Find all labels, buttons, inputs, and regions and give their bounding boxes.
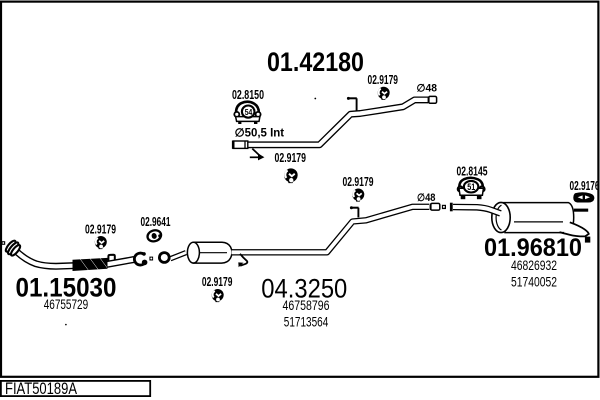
svg-text:02.9179: 02.9179: [343, 174, 374, 189]
svg-text:02.9179: 02.9179: [85, 221, 116, 236]
svg-text:02.8145: 02.8145: [457, 163, 488, 178]
svg-text:46755729: 46755729: [44, 297, 88, 312]
svg-text:∅48: ∅48: [417, 83, 438, 95]
svg-text:51740052: 51740052: [511, 273, 557, 289]
svg-text:01.42180: 01.42180: [267, 47, 364, 77]
svg-text:46758796: 46758796: [283, 298, 330, 313]
svg-text:02.9179: 02.9179: [202, 274, 233, 289]
svg-text:51: 51: [467, 182, 475, 192]
svg-text:02.9176: 02.9176: [570, 178, 600, 193]
svg-text:FIAT50189A: FIAT50189A: [5, 380, 77, 398]
svg-text:46826932: 46826932: [511, 257, 557, 273]
svg-text:54: 54: [245, 107, 253, 117]
svg-text:∅48: ∅48: [417, 192, 436, 204]
svg-text:02.9179: 02.9179: [368, 72, 399, 87]
svg-text:02.9179: 02.9179: [275, 150, 307, 165]
svg-text:02.9641: 02.9641: [141, 214, 171, 229]
svg-text:∅50,5 Int: ∅50,5 Int: [235, 128, 285, 140]
svg-text:02.8150: 02.8150: [232, 87, 264, 102]
svg-text:51713564: 51713564: [284, 314, 329, 329]
